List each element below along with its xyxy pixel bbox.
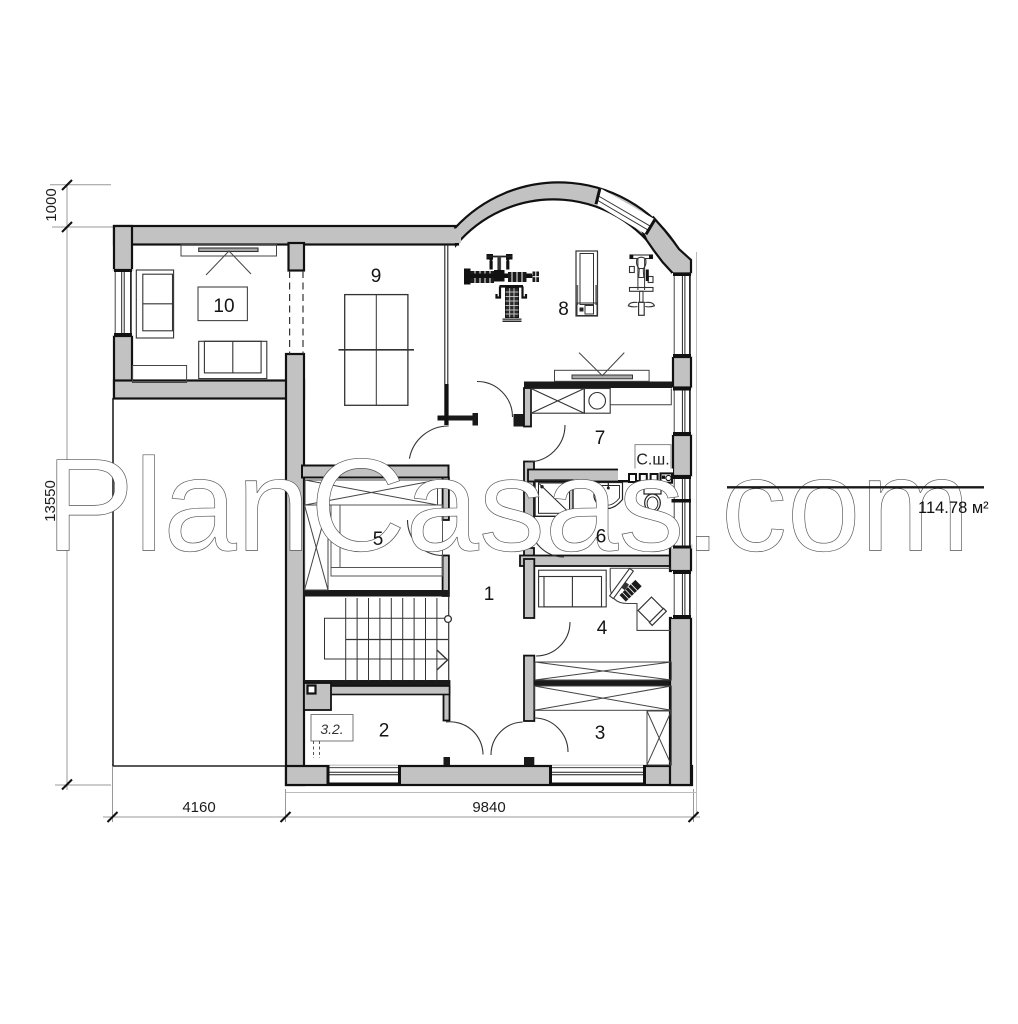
svg-text:10: 10 bbox=[213, 296, 234, 317]
svg-text:2: 2 bbox=[379, 721, 390, 742]
svg-text:8: 8 bbox=[558, 299, 569, 320]
svg-text:С.ш.: С.ш. bbox=[636, 452, 669, 469]
svg-text:1000: 1000 bbox=[43, 188, 60, 221]
svg-text:1: 1 bbox=[484, 584, 495, 605]
svg-text:9: 9 bbox=[371, 266, 382, 287]
svg-text:3: 3 bbox=[595, 723, 606, 744]
svg-text:5: 5 bbox=[373, 529, 384, 550]
svg-text:4160: 4160 bbox=[182, 799, 215, 816]
svg-text:13550: 13550 bbox=[42, 480, 59, 522]
svg-text:PlanCasas.com: PlanCasas.com bbox=[46, 432, 970, 579]
svg-text:3.2.: 3.2. bbox=[320, 721, 343, 737]
svg-text:4: 4 bbox=[597, 618, 608, 639]
svg-text:6: 6 bbox=[596, 527, 607, 548]
svg-text:9840: 9840 bbox=[472, 799, 505, 816]
svg-text:114.78 м²: 114.78 м² bbox=[918, 499, 989, 517]
svg-text:7: 7 bbox=[595, 428, 606, 449]
